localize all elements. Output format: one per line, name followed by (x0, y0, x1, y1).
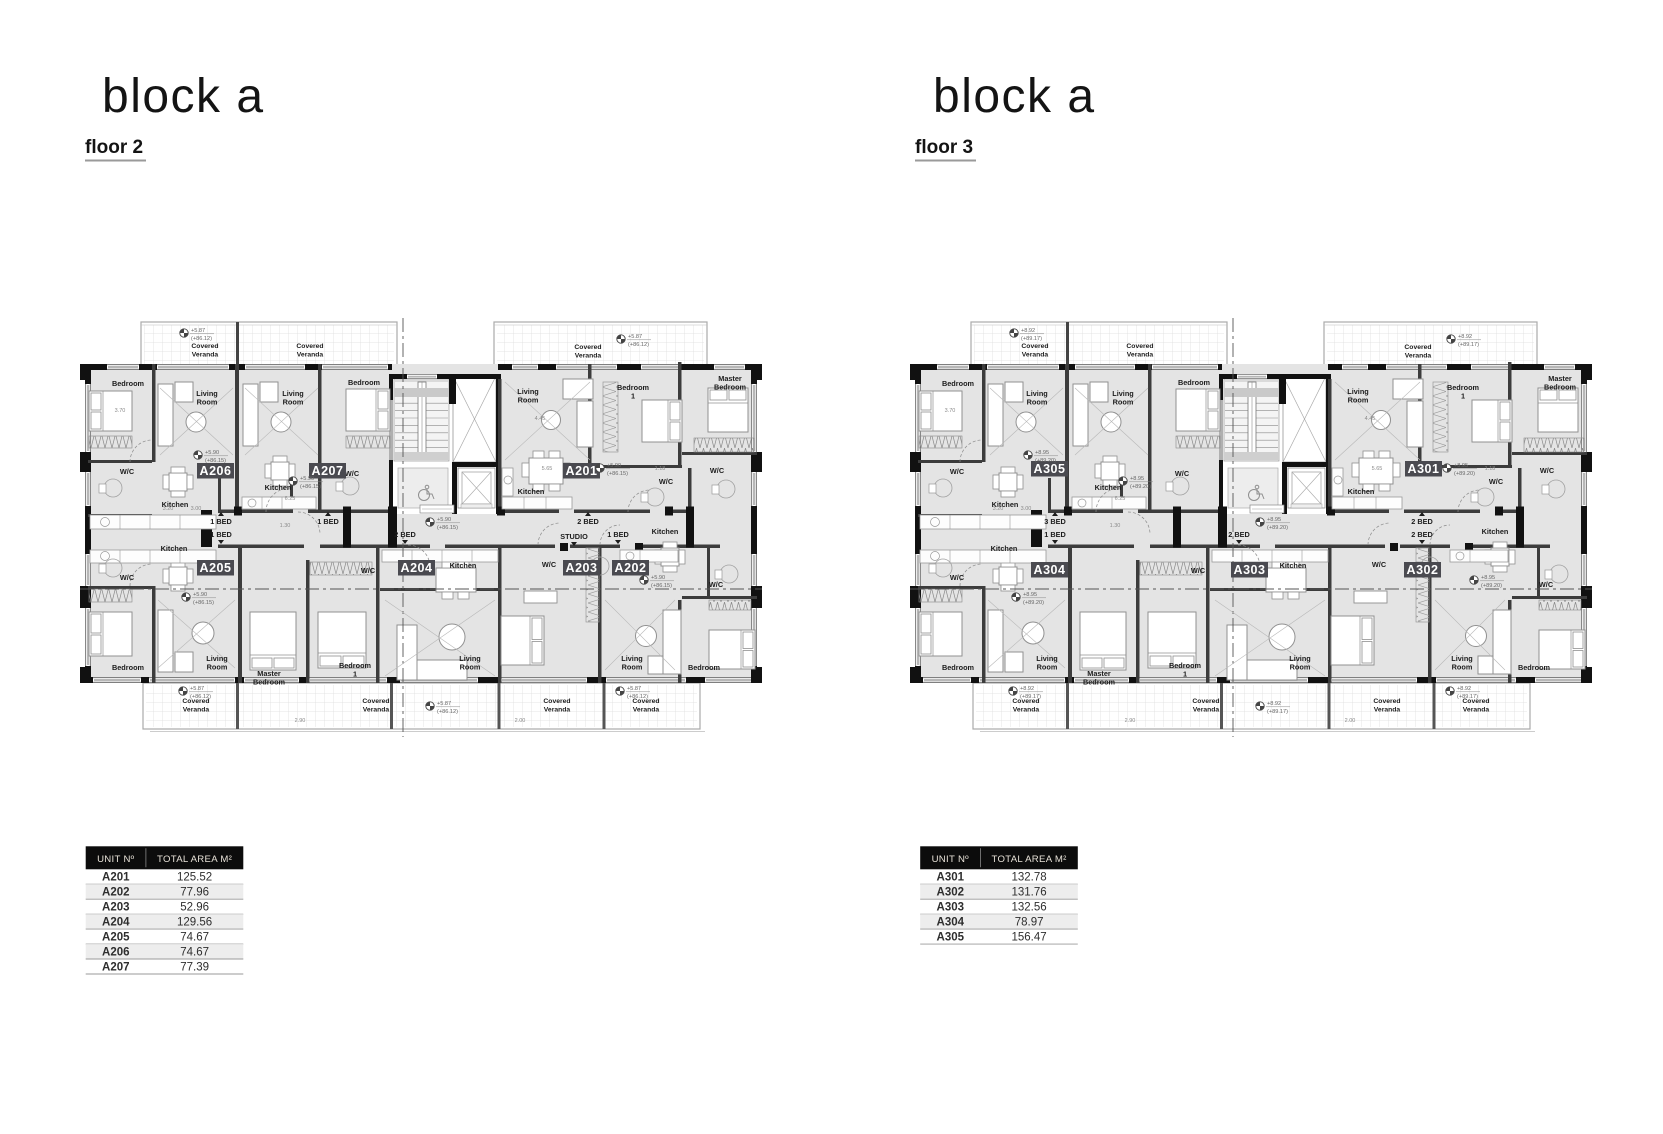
svg-text:129.56: 129.56 (177, 917, 212, 929)
svg-text:+8.95: +8.95 (1023, 592, 1037, 598)
svg-text:A205: A205 (200, 561, 232, 575)
svg-text:floor 2: floor 2 (85, 137, 143, 158)
svg-text:+8.95: +8.95 (1267, 517, 1281, 523)
svg-text:(+86.12): (+86.12) (191, 336, 212, 342)
svg-text:77.96: 77.96 (180, 887, 209, 899)
svg-text:+8.95: +8.95 (1035, 450, 1049, 456)
svg-text:A207: A207 (102, 961, 130, 973)
svg-text:74.67: 74.67 (180, 946, 209, 958)
svg-text:TOTAL AREA M²: TOTAL AREA M² (992, 854, 1068, 865)
svg-text:A204: A204 (102, 917, 130, 929)
svg-text:A303: A303 (1234, 563, 1266, 577)
svg-text:132.78: 132.78 (1012, 872, 1047, 884)
svg-text:A201: A201 (566, 464, 598, 478)
svg-text:(+86.12): (+86.12) (628, 342, 649, 348)
svg-text:A305: A305 (1034, 462, 1066, 476)
svg-text:A204: A204 (401, 561, 433, 575)
svg-text:+5.90: +5.90 (300, 476, 314, 482)
svg-text:78.97: 78.97 (1015, 917, 1044, 929)
svg-text:3 BED: 3 BED (1044, 517, 1066, 526)
svg-text:A202: A202 (102, 887, 130, 899)
svg-text:+8.95: +8.95 (1454, 463, 1468, 469)
svg-text:77.39: 77.39 (180, 961, 209, 973)
svg-text:2 BED: 2 BED (1411, 517, 1433, 526)
svg-text:A201: A201 (102, 872, 130, 884)
svg-text:A205: A205 (102, 931, 130, 943)
svg-text:(+86.15): (+86.15) (205, 458, 226, 464)
svg-text:(+86.12): (+86.12) (627, 694, 648, 700)
svg-text:125.52: 125.52 (177, 872, 212, 884)
svg-text:+5.87: +5.87 (190, 686, 204, 692)
svg-text:(+86.15): (+86.15) (651, 583, 672, 589)
svg-text:block a: block a (933, 70, 1096, 123)
svg-text:(+86.15): (+86.15) (437, 525, 458, 531)
svg-text:74.67: 74.67 (180, 931, 209, 943)
svg-text:(+89.20): (+89.20) (1130, 484, 1151, 490)
svg-text:(+89.17): (+89.17) (1021, 336, 1042, 342)
svg-text:TOTAL AREA M²: TOTAL AREA M² (157, 854, 233, 865)
svg-text:+8.95: +8.95 (1130, 476, 1144, 482)
svg-text:A305: A305 (937, 931, 965, 943)
svg-text:(+89.17): (+89.17) (1267, 709, 1288, 715)
svg-text:+8.92: +8.92 (1457, 686, 1471, 692)
svg-text:UNIT Nº: UNIT Nº (97, 854, 135, 865)
svg-text:A206: A206 (200, 464, 232, 478)
svg-text:A206: A206 (102, 946, 130, 958)
svg-text:2 BED: 2 BED (394, 530, 416, 539)
svg-text:(+89.20): (+89.20) (1035, 458, 1056, 464)
svg-text:+5.87: +5.87 (627, 686, 641, 692)
svg-text:(+86.15): (+86.15) (193, 600, 214, 606)
svg-text:+8.92: +8.92 (1458, 334, 1472, 340)
svg-text:A301: A301 (1408, 462, 1440, 476)
svg-text:2 BED: 2 BED (577, 517, 599, 526)
svg-text:2 BED: 2 BED (1411, 530, 1433, 539)
svg-text:(+89.20): (+89.20) (1023, 600, 1044, 606)
svg-text:STUDIO: STUDIO (560, 532, 588, 541)
svg-text:+8.92: +8.92 (1020, 686, 1034, 692)
svg-text:1 BED: 1 BED (210, 530, 232, 539)
svg-text:+8.95: +8.95 (1481, 575, 1495, 581)
svg-text:52.96: 52.96 (180, 902, 209, 914)
svg-text:(+89.17): (+89.17) (1457, 694, 1478, 700)
svg-text:A202: A202 (615, 561, 647, 575)
svg-text:+5.87: +5.87 (437, 701, 451, 707)
svg-text:+5.90: +5.90 (651, 575, 665, 581)
svg-text:(+89.17): (+89.17) (1020, 694, 1041, 700)
svg-text:A302: A302 (937, 887, 965, 899)
svg-text:UNIT Nº: UNIT Nº (932, 854, 970, 865)
svg-text:132.56: 132.56 (1012, 902, 1047, 914)
svg-text:A304: A304 (937, 917, 965, 929)
svg-text:A303: A303 (937, 902, 965, 914)
svg-text:1 BED: 1 BED (607, 530, 629, 539)
svg-text:A203: A203 (102, 902, 130, 914)
svg-text:(+89.20): (+89.20) (1267, 525, 1288, 531)
svg-text:block a: block a (102, 70, 265, 123)
svg-text:131.76: 131.76 (1012, 887, 1047, 899)
svg-text:1 BED: 1 BED (1044, 530, 1066, 539)
svg-text:1 BED: 1 BED (210, 517, 232, 526)
svg-text:A207: A207 (312, 464, 344, 478)
svg-text:+5.90: +5.90 (193, 592, 207, 598)
svg-text:floor 3: floor 3 (915, 137, 973, 158)
svg-text:+5.90: +5.90 (607, 463, 621, 469)
svg-text:A203: A203 (566, 561, 598, 575)
svg-text:A302: A302 (1407, 563, 1439, 577)
svg-text:2 BED: 2 BED (1228, 530, 1250, 539)
svg-text:+8.92: +8.92 (1267, 701, 1281, 707)
svg-text:A301: A301 (937, 872, 965, 884)
svg-text:+8.92: +8.92 (1021, 328, 1035, 334)
svg-text:(+89.20): (+89.20) (1454, 471, 1475, 477)
svg-text:1 BED: 1 BED (317, 517, 339, 526)
svg-text:(+86.15): (+86.15) (607, 471, 628, 477)
svg-text:(+89.20): (+89.20) (1481, 583, 1502, 589)
svg-text:+5.87: +5.87 (628, 334, 642, 340)
svg-text:(+89.17): (+89.17) (1458, 342, 1479, 348)
svg-text:+5.90: +5.90 (205, 450, 219, 456)
svg-text:(+86.12): (+86.12) (437, 709, 458, 715)
svg-text:(+86.12): (+86.12) (190, 694, 211, 700)
svg-text:+5.90: +5.90 (437, 517, 451, 523)
svg-text:156.47: 156.47 (1012, 931, 1047, 943)
svg-text:A304: A304 (1034, 563, 1066, 577)
svg-text:+5.87: +5.87 (191, 328, 205, 334)
svg-text:(+86.15): (+86.15) (300, 484, 321, 490)
